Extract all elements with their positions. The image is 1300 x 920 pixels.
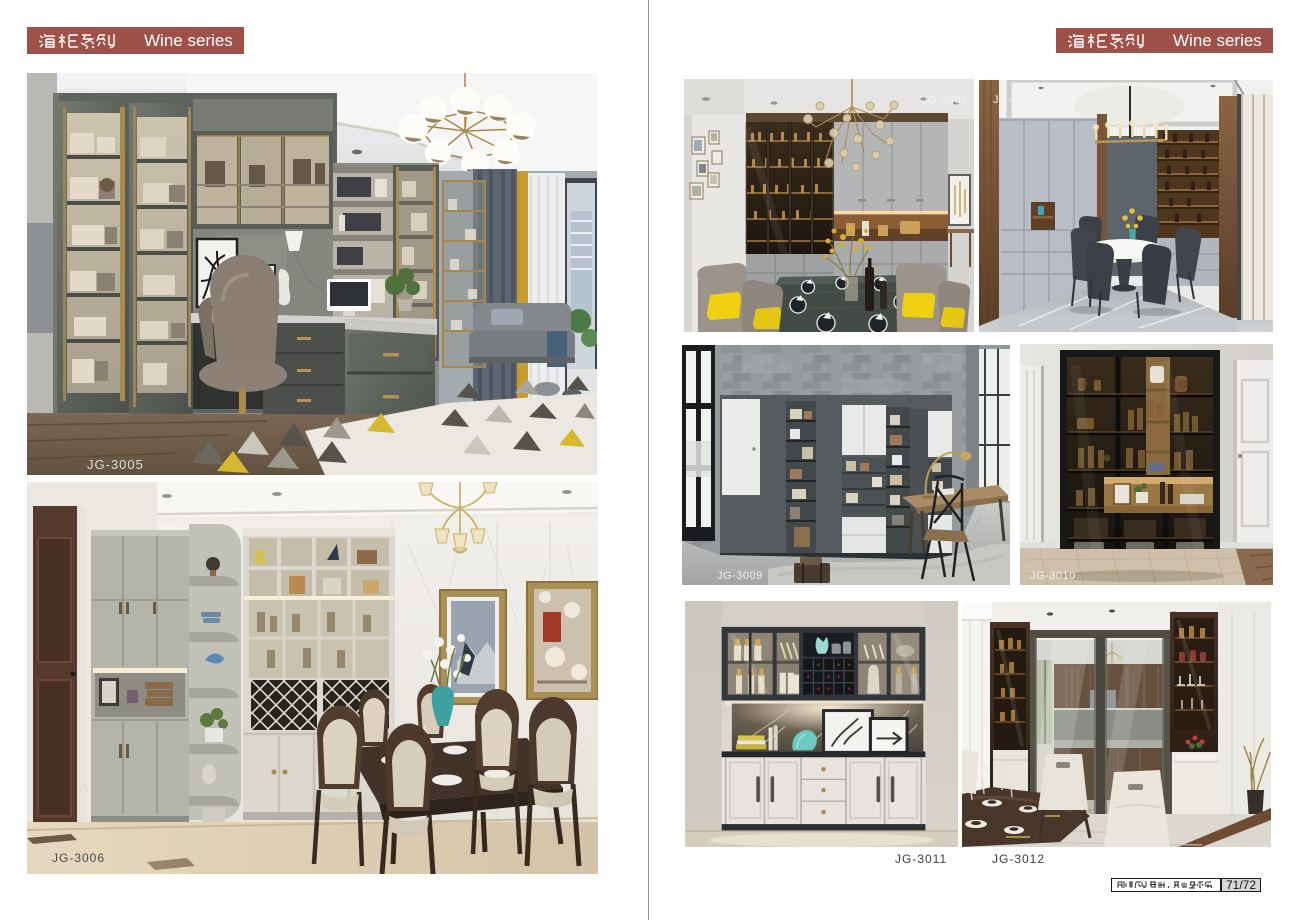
- svg-text:JG-3006: JG-3006: [52, 851, 105, 865]
- svg-text:JG-3007: JG-3007: [922, 94, 968, 106]
- svg-text:JG-3009: JG-3009: [717, 570, 763, 582]
- svg-text:JG-3010: JG-3010: [1030, 570, 1076, 582]
- svg-text:JG-3005: JG-3005: [87, 457, 144, 472]
- svg-text:JG-3008: JG-3008: [993, 94, 1039, 106]
